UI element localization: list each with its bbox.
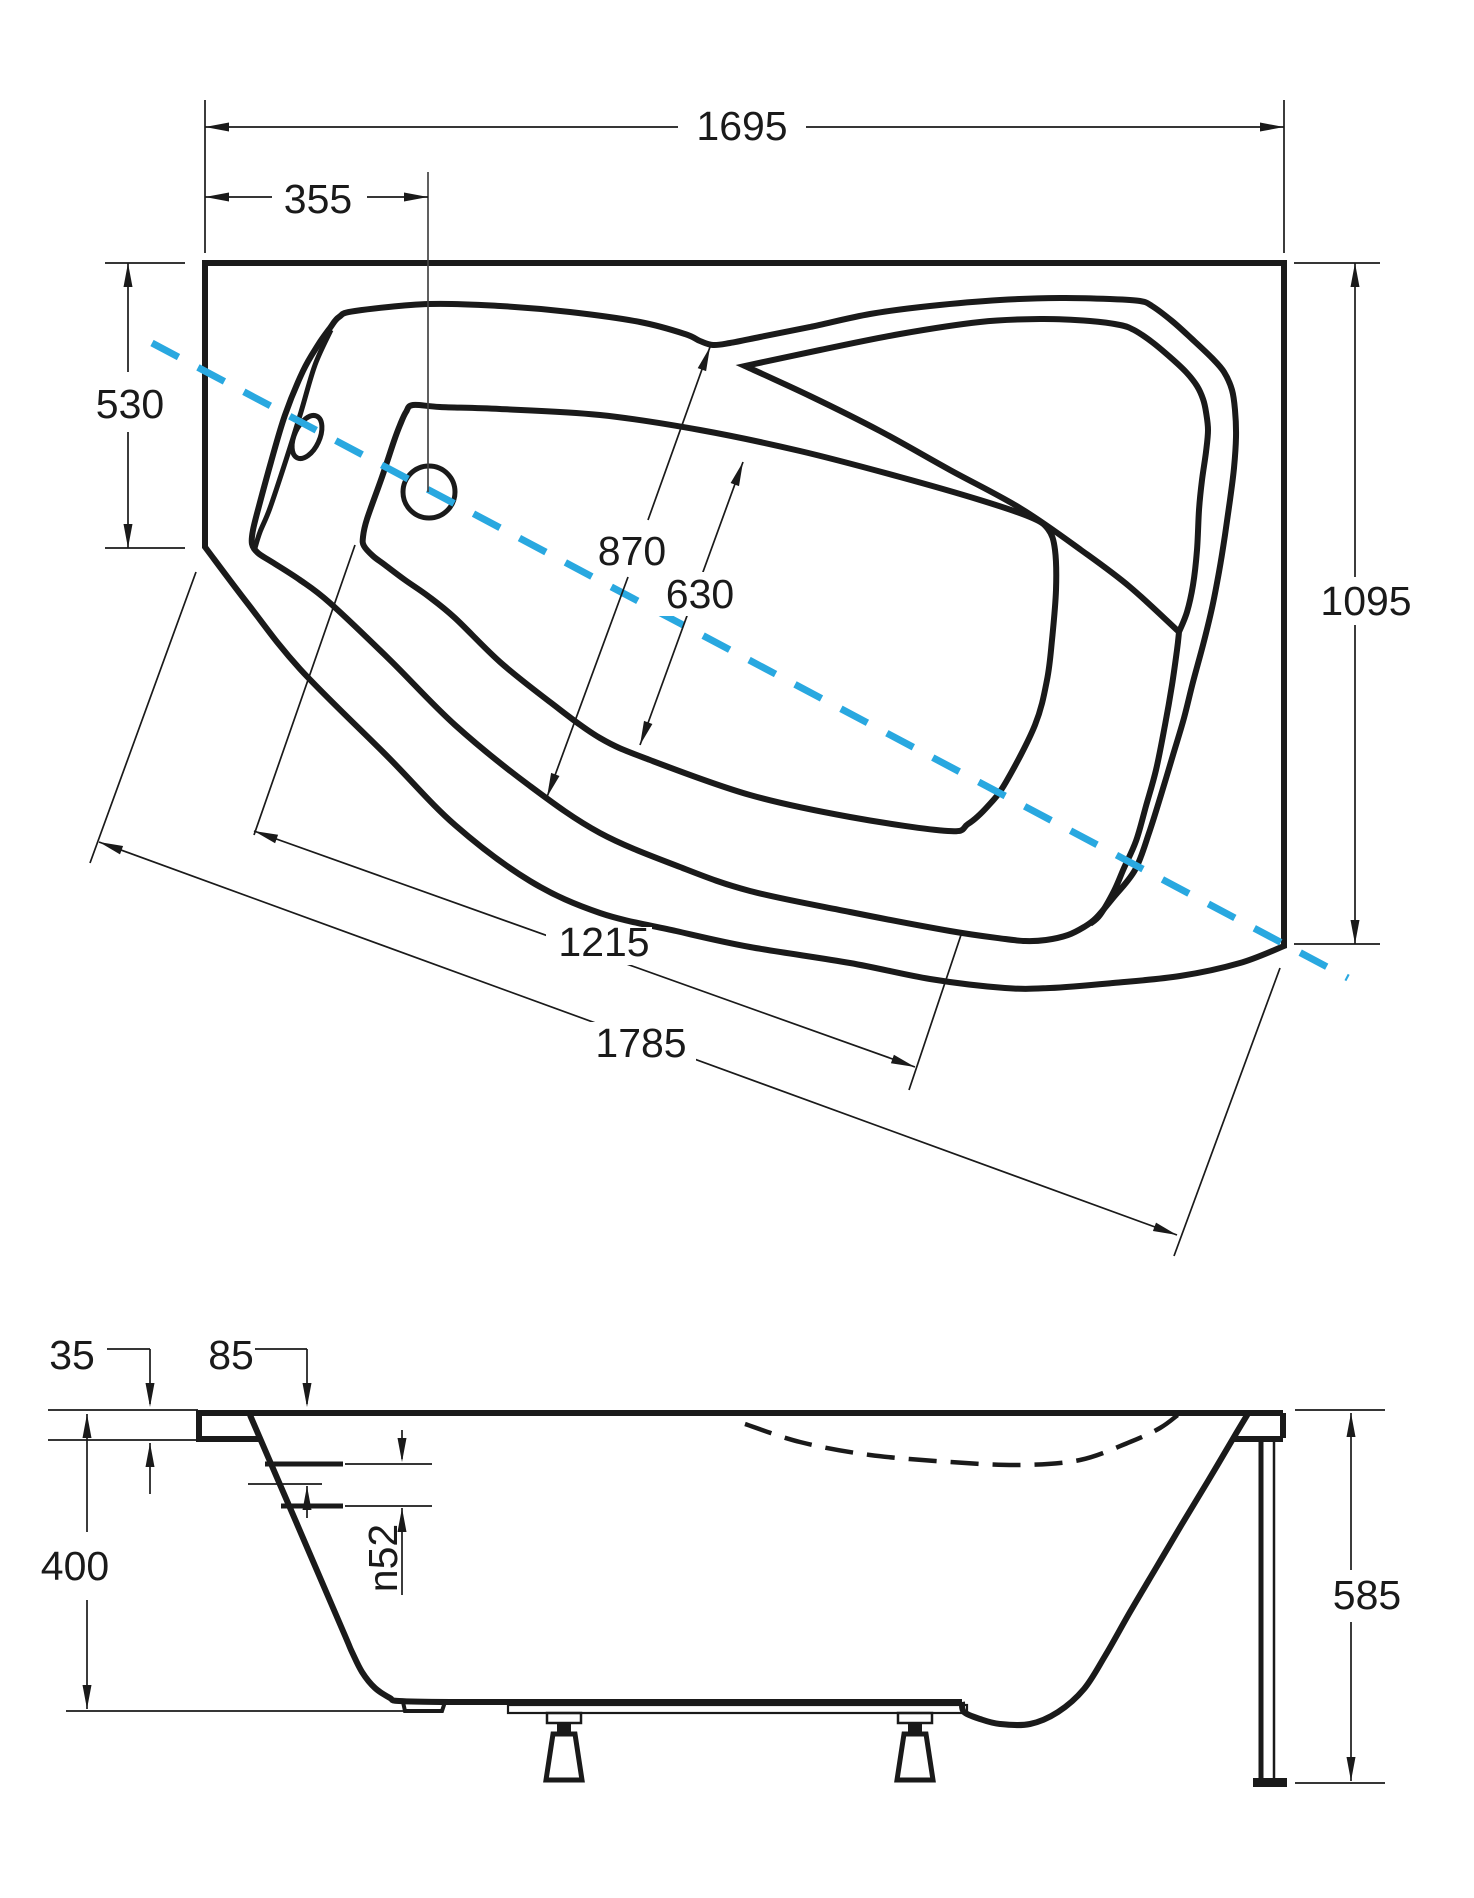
svg-text:400: 400 [41, 1543, 109, 1589]
svg-text:355: 355 [284, 176, 352, 222]
svg-text:1215: 1215 [558, 919, 649, 965]
svg-text:585: 585 [1333, 1572, 1401, 1618]
svg-text:1785: 1785 [595, 1020, 686, 1066]
svg-text:630: 630 [666, 571, 734, 617]
svg-text:85: 85 [208, 1332, 254, 1378]
svg-text:1095: 1095 [1320, 578, 1411, 624]
svg-text:35: 35 [49, 1332, 95, 1378]
svg-text:530: 530 [96, 381, 164, 427]
svg-text:870: 870 [598, 528, 666, 574]
svg-text:1695: 1695 [696, 103, 787, 149]
svg-text:n52: n52 [360, 1524, 406, 1592]
